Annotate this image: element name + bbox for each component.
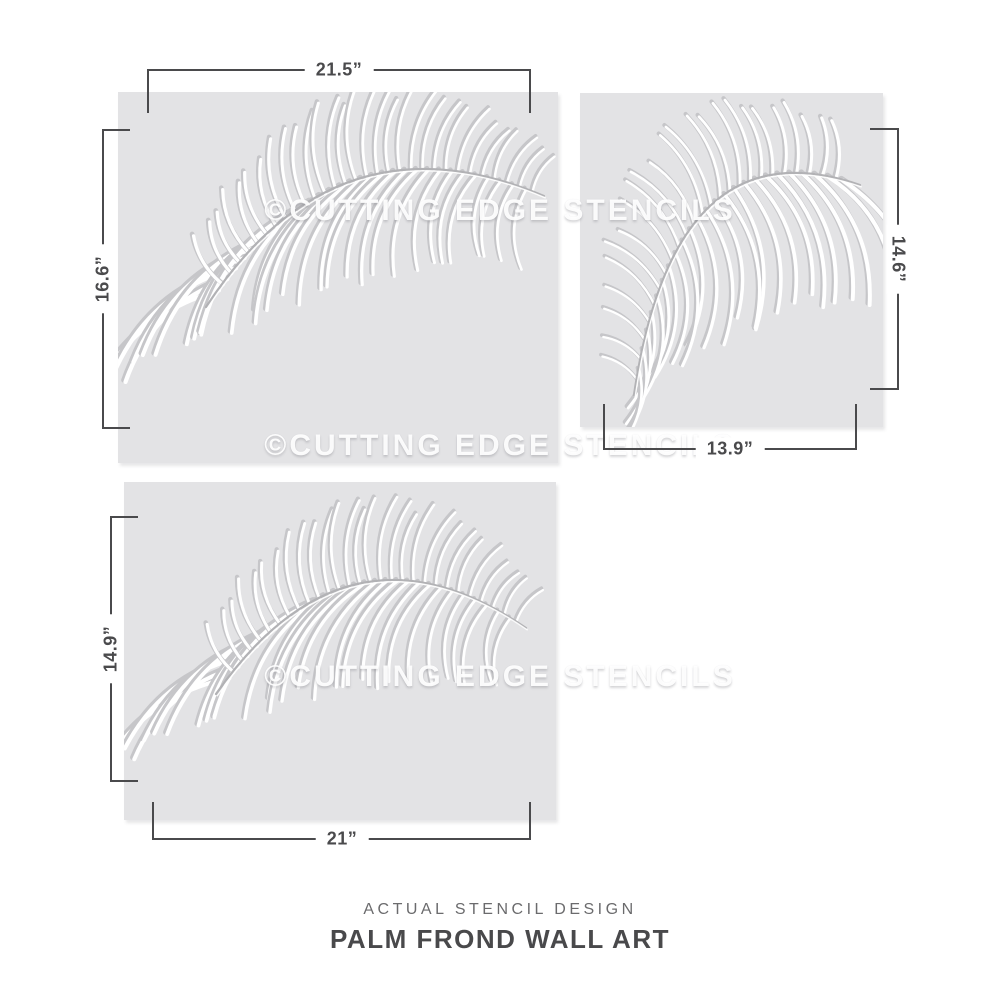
dimension-tick [102,129,130,131]
stencil-sheet-large [118,92,558,463]
dimension-tick [855,404,857,450]
dimension-tick [102,427,130,429]
width-dimension-label-medium: 13.9” [696,438,765,461]
dimension-tick [870,388,898,390]
width-dimension-label-large: 21.5” [305,59,374,82]
palm-frond-stencil [124,482,556,820]
stencil-sheet-small [124,482,556,820]
dimension-tick [110,780,138,782]
dimension-tick [529,69,531,113]
palm-frond-stencil [118,92,558,463]
stencil-sheet-medium [580,93,883,427]
dimension-tick [603,404,605,450]
height-dimension-label-large: 16.6” [92,245,115,314]
product-title: PALM FROND WALL ART [0,924,1000,955]
dimension-tick [110,516,138,518]
dimension-tick [529,802,531,840]
dimension-tick [147,69,149,113]
caption-subtitle: ACTUAL STENCIL DESIGN [0,901,1000,919]
height-dimension-label-medium: 14.6” [887,225,910,294]
dimension-tick [870,128,898,130]
height-dimension-label-small: 14.9” [100,615,123,684]
dimension-tick [152,802,154,840]
stencil-product-image: 21.5” 16.6” 14.6” 13.9” 14.9” 21” ©CUTTI… [0,0,1000,1000]
palm-frond-stencil [580,93,883,427]
width-dimension-label-small: 21” [316,828,369,851]
